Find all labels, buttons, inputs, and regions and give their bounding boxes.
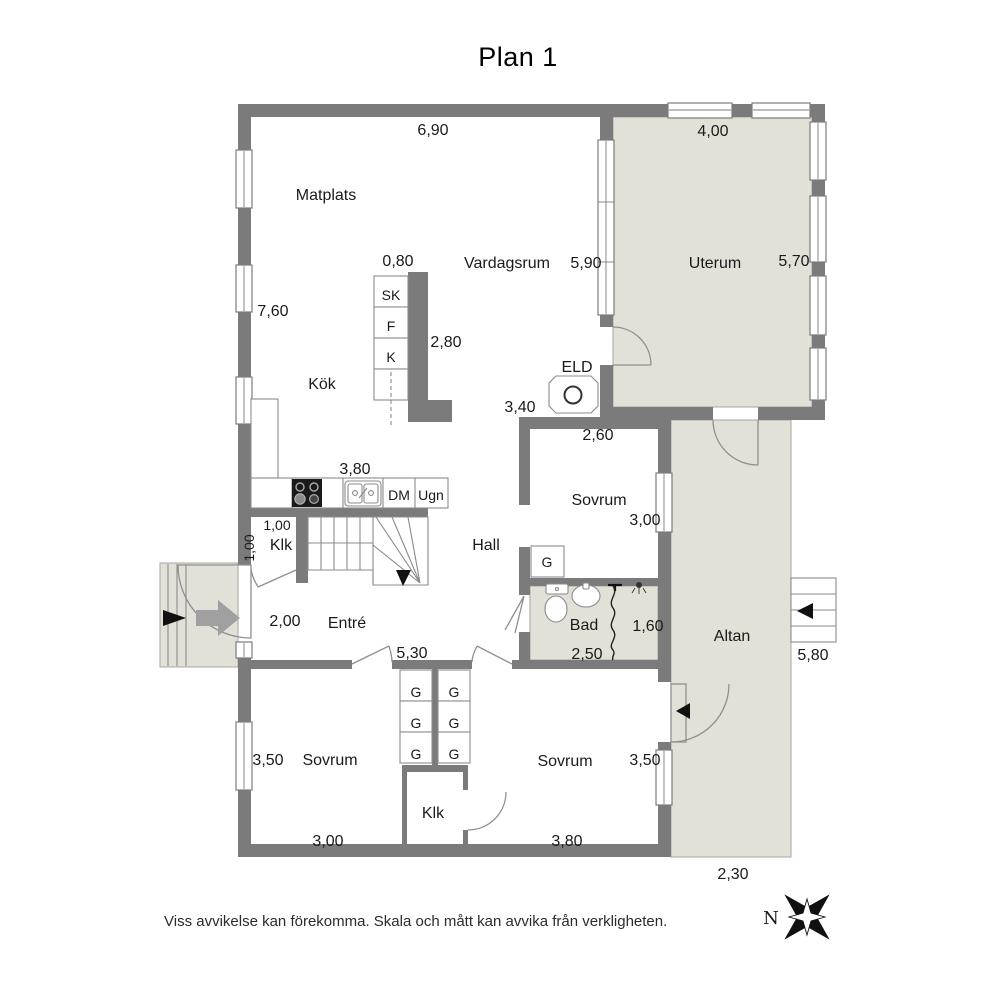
dim-left-height: 7,60 <box>257 303 288 320</box>
wardrobe-label-g: G <box>449 746 460 762</box>
dim-counter-length: 3,80 <box>339 461 370 478</box>
fixture-label-dm: DM <box>388 487 410 503</box>
fixture-label-eld: ELD <box>561 359 592 376</box>
room-label-kok: Kök <box>308 376 337 393</box>
dim-entrance-width: 2,00 <box>269 613 300 630</box>
dim-sovrum-mid-height: 3,00 <box>629 512 660 529</box>
room-label-sovrum-mid: Sovrum <box>571 492 626 509</box>
floor-plan-page: Plan 1 <box>0 0 992 992</box>
window <box>236 150 252 208</box>
room-label-klk-upper: Klk <box>270 537 293 554</box>
fixture-label-k: K <box>386 349 396 365</box>
window <box>810 196 826 262</box>
fireplace-icon <box>549 376 598 413</box>
window <box>810 122 826 180</box>
klk-lower-door <box>468 792 506 830</box>
fixture-label-f: F <box>387 318 396 334</box>
window <box>810 276 826 335</box>
kitchen-counter-side <box>251 399 278 478</box>
wardrobe-label-g: G <box>449 684 460 700</box>
dim-shower-width: 1,60 <box>632 618 663 635</box>
fixture-label-sk: SK <box>382 287 401 303</box>
dim-vardagsrum-height: 5,90 <box>570 255 601 272</box>
room-label-altan: Altan <box>714 628 750 645</box>
dim-island-length: 2,80 <box>430 334 461 351</box>
room-label-entre: Entré <box>328 615 366 632</box>
wardrobe-label-g: G <box>411 684 422 700</box>
window <box>236 642 252 658</box>
room-label-klk-lower: Klk <box>422 805 445 822</box>
compass-north-label: N <box>763 908 779 929</box>
dim-sovrum-mid-width: 2,60 <box>582 427 613 444</box>
window <box>668 103 732 118</box>
wardrobe-label-g: G <box>411 746 422 762</box>
window <box>752 103 810 118</box>
floor-plan: 6,90 4,00 Matplats 0,80 Vardagsrum 5,90 … <box>0 0 992 992</box>
window <box>598 140 614 315</box>
room-label-uterum: Uterum <box>689 255 741 272</box>
wardrobe-label-g: G <box>411 715 422 731</box>
window <box>236 265 252 312</box>
bathroom-door <box>505 596 524 633</box>
altan-steps <box>791 578 836 642</box>
room-label-sovrum-right: Sovrum <box>537 753 592 770</box>
window <box>810 348 826 400</box>
room-label-hall: Hall <box>472 537 500 554</box>
dim-entre-width: 5,30 <box>396 645 427 662</box>
dim-uterum-height: 5,70 <box>778 253 809 270</box>
dim-sovrum-left-height: 3,50 <box>252 752 283 769</box>
sovrum-left-door <box>352 646 392 664</box>
dim-island-width: 0,80 <box>382 253 413 270</box>
wardrobe-label-hall: G <box>542 554 553 570</box>
dim-altan-side: 5,80 <box>797 647 828 664</box>
dim-bad-width: 2,50 <box>571 646 602 663</box>
dim-klk-width: 1,00 <box>263 517 290 533</box>
dim-sovrum-right-height: 3,50 <box>629 752 660 769</box>
toilet-icon <box>545 584 568 622</box>
dim-sovrum-left-width: 3,00 <box>312 833 343 850</box>
dim-klk-depth: 1,00 <box>241 534 257 561</box>
window <box>236 377 252 424</box>
fixture-label-ugn: Ugn <box>418 487 444 503</box>
window <box>236 722 252 790</box>
sovrum-right-door <box>472 646 512 664</box>
disclaimer-text: Viss avvikelse kan förekomma. Skala och … <box>164 913 667 930</box>
dim-opening-width: 3,40 <box>504 399 535 416</box>
staircase <box>308 517 428 586</box>
dim-uterum-width: 4,00 <box>697 123 728 140</box>
room-label-bad: Bad <box>570 617 598 634</box>
wardrobe-label-g: G <box>449 715 460 731</box>
dim-altan-width: 2,30 <box>717 866 748 883</box>
klk-upper-door <box>251 569 296 587</box>
stove-icon <box>292 479 322 507</box>
dim-sovrum-right-width: 3,80 <box>551 833 582 850</box>
room-label-sovrum-left: Sovrum <box>302 752 357 769</box>
sink-icon <box>345 481 381 506</box>
room-label-matplats: Matplats <box>296 187 356 204</box>
dim-top-width: 6,90 <box>417 122 448 139</box>
room-label-vardagsrum: Vardagsrum <box>464 255 550 272</box>
